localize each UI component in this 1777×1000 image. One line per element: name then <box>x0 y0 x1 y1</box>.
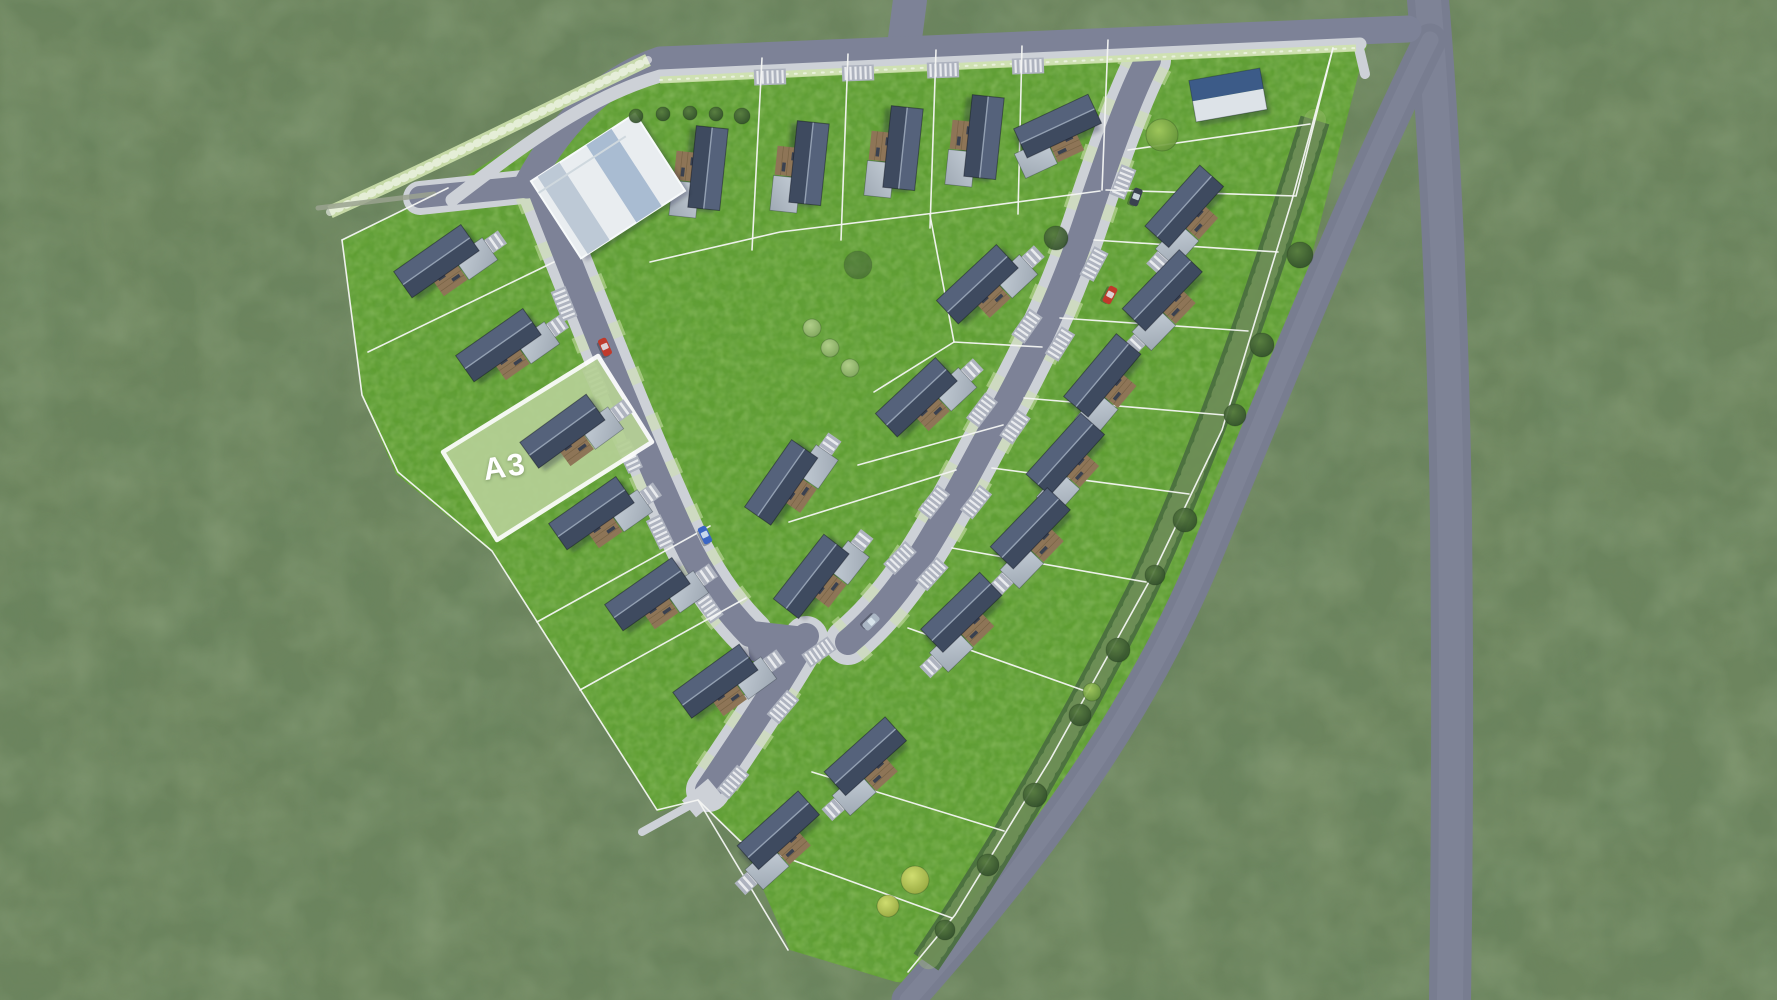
driveway-crossing <box>1012 57 1045 74</box>
crossing-stripe <box>781 70 784 83</box>
dark-tree <box>656 107 670 121</box>
crossing-stripe <box>854 67 857 80</box>
dark-tree <box>1069 704 1091 726</box>
dark-tree <box>1044 226 1068 250</box>
dark-tree <box>935 920 955 940</box>
crossing-stripe <box>1034 59 1037 72</box>
highlighted-plot-label[interactable]: A3 <box>480 446 529 488</box>
crossing-stripe <box>944 63 947 76</box>
soft-tree <box>844 251 872 279</box>
light-tree <box>841 359 859 377</box>
crossing-stripe <box>949 63 952 76</box>
dark-tree <box>1145 565 1165 585</box>
dark-tree <box>1106 638 1130 662</box>
dark-tree <box>1224 404 1246 426</box>
sidewalk <box>1358 44 1365 74</box>
crossing-stripe <box>929 64 932 77</box>
crossing-stripe <box>1029 59 1032 72</box>
yellow-tree <box>901 866 929 894</box>
crossing-stripe <box>771 70 774 83</box>
crossing-stripe <box>1024 60 1027 73</box>
dark-tree <box>734 108 750 124</box>
driveway-crossing <box>754 68 787 85</box>
crossing-stripe <box>756 71 759 84</box>
crossing-stripe <box>766 71 769 84</box>
dark-tree <box>1250 333 1274 357</box>
dark-tree <box>629 109 643 123</box>
light-tree <box>803 319 821 337</box>
crossing-stripe <box>954 63 957 76</box>
light-tree <box>821 339 839 357</box>
dark-tree <box>1287 242 1313 268</box>
crossing-stripe <box>869 66 872 79</box>
crossing-stripe <box>849 67 852 80</box>
dark-tree <box>683 106 697 120</box>
dark-tree <box>1023 783 1047 807</box>
crossing-stripe <box>859 66 862 79</box>
driveway-crossing <box>927 61 960 78</box>
dark-tree <box>709 107 723 121</box>
bright-tree <box>1083 683 1101 701</box>
bright-tree <box>1146 119 1178 151</box>
siteplan-stage: A3 <box>0 0 1777 1000</box>
crossing-stripe <box>776 70 779 83</box>
dark-tree <box>977 854 999 876</box>
siteplan-map <box>0 0 1777 1000</box>
crossing-stripe <box>1014 60 1017 73</box>
crossing-stripe <box>864 66 867 79</box>
yellow-tree <box>877 895 899 917</box>
crossing-stripe <box>1039 59 1042 72</box>
crossing-stripe <box>939 64 942 77</box>
dark-tree <box>1173 508 1197 532</box>
